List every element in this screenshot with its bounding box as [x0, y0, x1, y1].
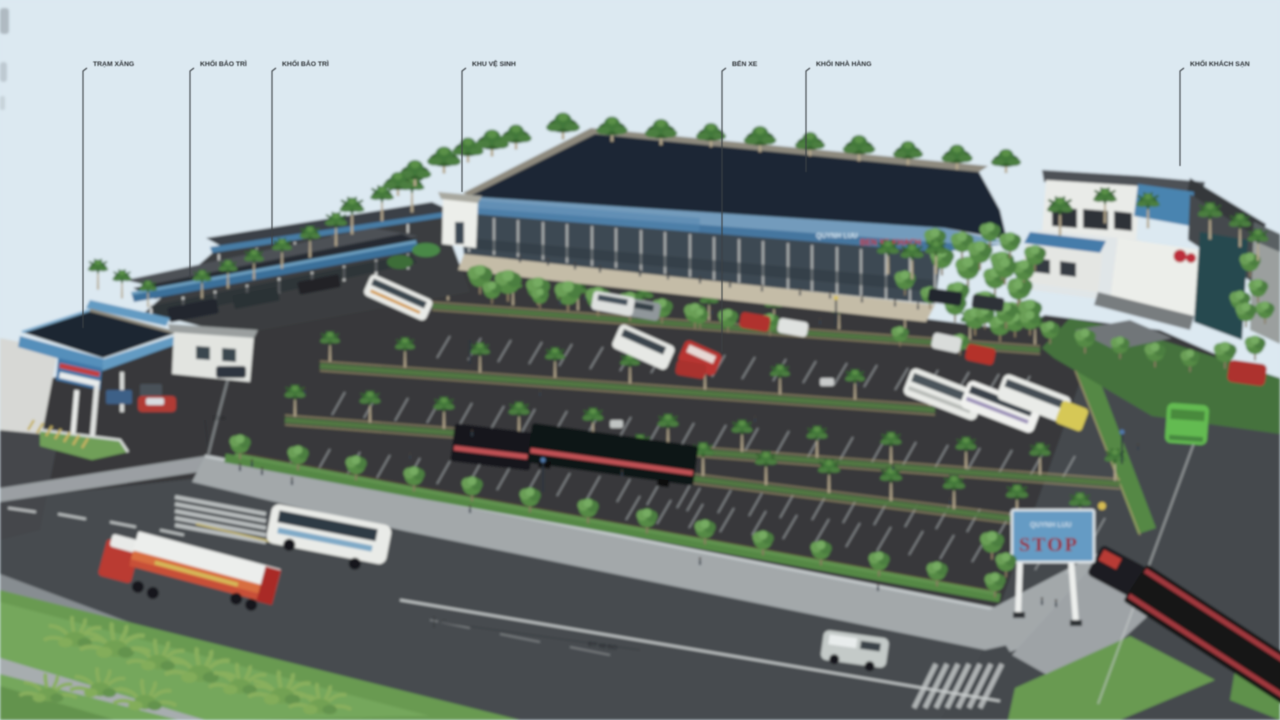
- svg-text:QUYNH LUU: QUYNH LUU: [1030, 522, 1072, 529]
- svg-text:QUYNH LUU: QUYNH LUU: [816, 233, 858, 240]
- svg-text:STOP: STOP: [1019, 534, 1079, 556]
- svg-text:TRẠM XĂNG: TRẠM XĂNG: [93, 59, 134, 68]
- svg-text:10 m: 10 m: [212, 416, 225, 422]
- svg-text:KHU VỆ SINH: KHU VỆ SINH: [472, 59, 516, 68]
